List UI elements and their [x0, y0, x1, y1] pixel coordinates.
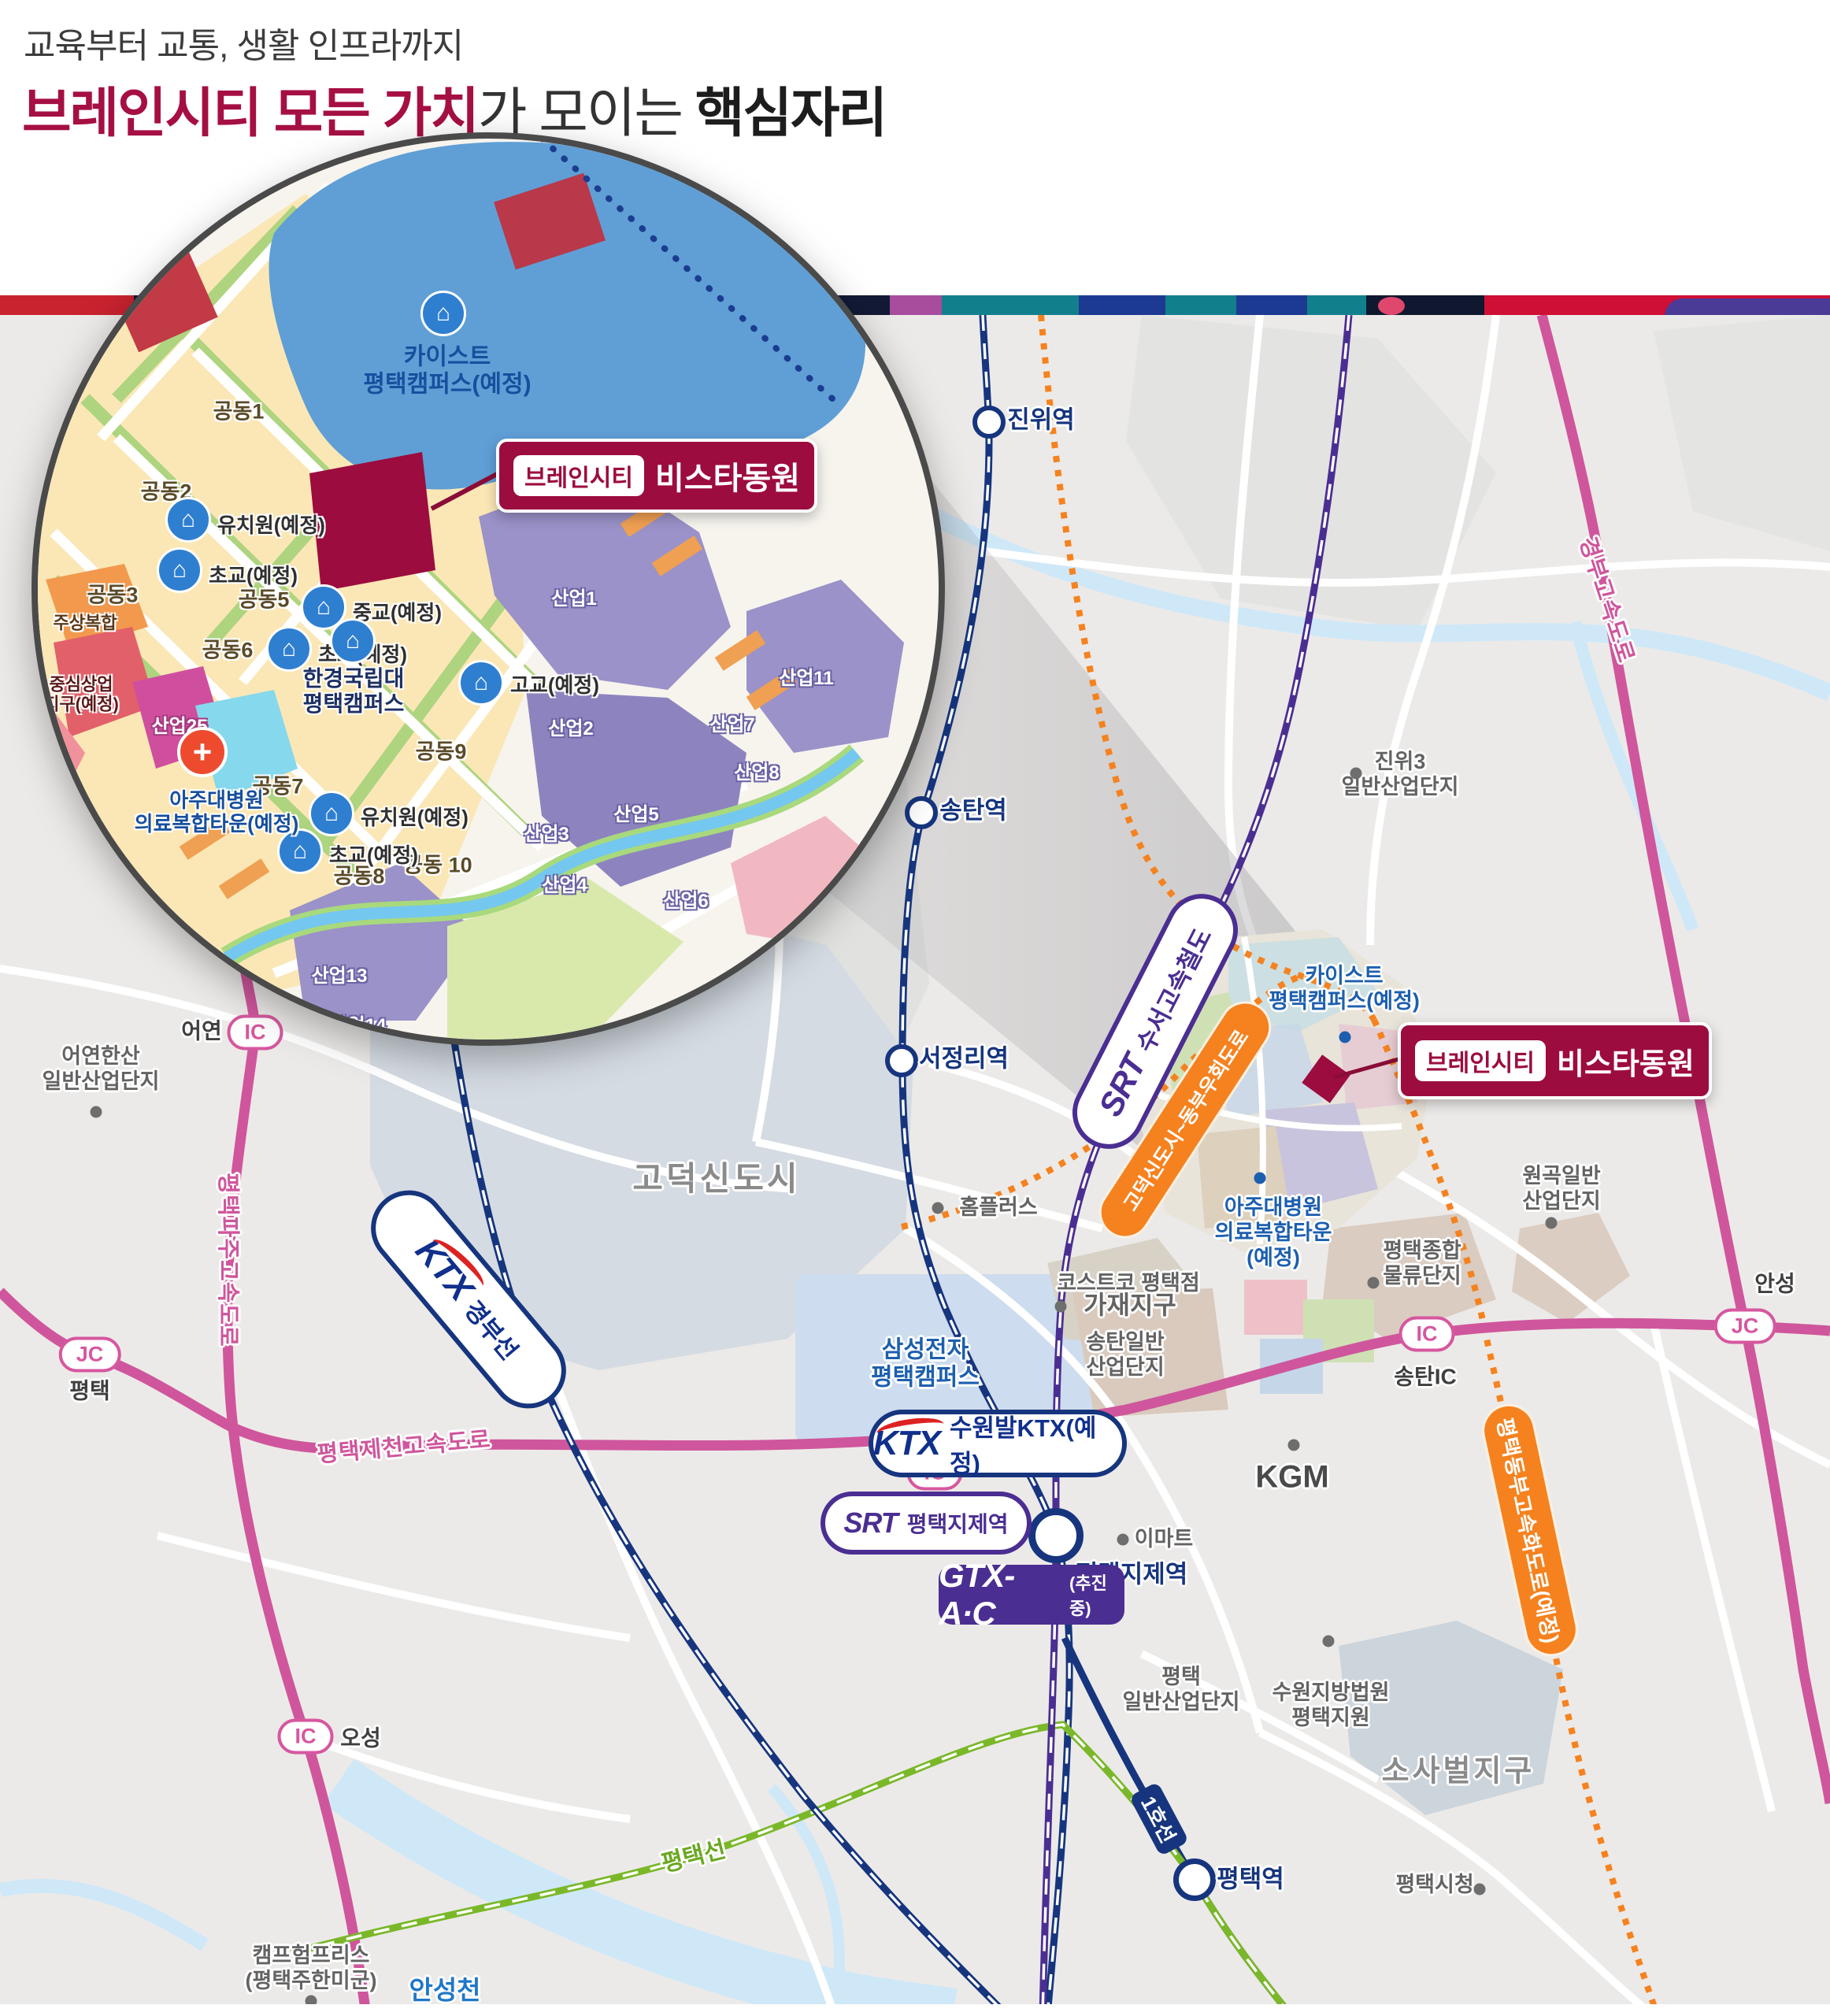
inset-industrial-label: 산업2: [548, 718, 594, 740]
title-accent: 브레인시티 모든 가치: [22, 83, 478, 143]
hospital-cross-icon: +: [177, 727, 228, 777]
rail-pill-suwon-ktx: KTX 수원발KTX(예정): [869, 1410, 1127, 1477]
school-icon: ⌂: [330, 618, 376, 664]
jc-badge-anseong: JC: [1714, 1309, 1776, 1344]
poi-label-emart: 이마트: [1135, 1527, 1194, 1552]
poi-dot: [932, 1203, 944, 1214]
wongok-industrial-area: [1512, 1213, 1630, 1323]
braincity-callout-inset: 브레인시티 비스타동원: [496, 439, 817, 513]
station-label-jinwi: 진위역: [1007, 406, 1075, 435]
station-circle-jije: [1028, 1508, 1084, 1563]
facility-label-ajou: 아주대병원 의료복합타운 (예정): [1214, 1195, 1332, 1271]
callout-name: 비스타동원: [655, 453, 800, 498]
inset-block-label: 공동1: [213, 399, 265, 424]
ic-badge-eoyeon: IC: [228, 1015, 283, 1051]
inset-label-kindergarten2: 유치원(예정): [361, 806, 469, 830]
inset-industrial-label: 산업7: [709, 714, 755, 736]
school-icon: ⌂: [157, 547, 202, 593]
ic-name-eoyeon: 어연: [181, 1017, 222, 1043]
ktx-logo: KTX: [873, 1424, 940, 1463]
rail-pill-srt-jije: SRT 평택지제역: [821, 1492, 1032, 1555]
jc-name-anseong: 안성: [1754, 1270, 1795, 1296]
ic-badge-oseong: IC: [278, 1719, 334, 1755]
braincity-callout-main: 브레인시티 비스타동원: [1398, 1022, 1712, 1099]
ic-badge-songtan: IC: [1399, 1317, 1455, 1352]
poi-label-kgm: KGM: [1255, 1458, 1328, 1495]
title-bold: 핵심자리: [695, 83, 886, 143]
page-subtitle: 교육부터 교통, 생활 인프라까지: [24, 17, 463, 68]
inset-label-high: 고교(예정): [510, 674, 599, 698]
inset-industrial-label: 산업13: [312, 965, 368, 988]
river: [0, 1886, 205, 1945]
inset-block-label: 공동9: [416, 739, 467, 764]
inset-label-elementary3: 초교(예정): [329, 844, 418, 868]
inset-block-label: 공동5: [239, 587, 290, 612]
inset-industrial-label: 산업8: [734, 762, 780, 784]
inset-label-hospital: 아주대병원 의료복합타운(예정): [135, 789, 299, 836]
area-label-pyeongtaek-ind: 평택 일반산업단지: [1122, 1665, 1239, 1715]
srt-logo: SRT: [1091, 1049, 1154, 1122]
inset-industrial-label: 산업6: [663, 891, 709, 913]
poi-dot: [1546, 1217, 1558, 1229]
school-icon: ⌂: [309, 791, 354, 836]
area-label-songtan-ind: 송탄일반 산업단지: [1086, 1330, 1164, 1380]
poi-label-homeplus: 홈플러스: [959, 1195, 1037, 1221]
school-icon: ⌂: [420, 291, 466, 336]
poi-dot: [1368, 1277, 1380, 1289]
inset-label-middle: 중교(예정): [353, 602, 442, 625]
station-circle-jinwi: [972, 406, 1006, 439]
ktx-logo: KTX: [407, 1232, 480, 1308]
ic-name-songtan: 송탄IC: [1394, 1363, 1457, 1389]
anseongcheon-river: [339, 1781, 953, 2004]
station-label-seojeongni: 서정리역: [919, 1045, 1009, 1074]
poi-dot: [1117, 1534, 1129, 1546]
inset-industrial-label: 산업1: [551, 588, 597, 610]
school-icon: ⌂: [266, 626, 312, 672]
station-label-pyeongtaek: 평택역: [1217, 1866, 1284, 1895]
river-label-anseongcheon: 안성천: [409, 1976, 480, 2007]
callout-chip: 브레인시티: [1415, 1040, 1546, 1081]
facility-dot: [1339, 1032, 1351, 1043]
inset-label-mixed-use: 주상복합: [54, 613, 117, 632]
srt-logo: SRT: [843, 1506, 897, 1540]
facility-dot: [1254, 1173, 1266, 1184]
terrain-patch: [1654, 315, 1830, 551]
inset-label-kindergarten: 유치원(예정): [217, 514, 325, 538]
poi-dot: [1474, 1884, 1486, 1896]
callout-name: 비스타동원: [1557, 1039, 1695, 1083]
ic-name-oseong: 오성: [340, 1725, 381, 1751]
inset-block-label: 공동6: [202, 638, 254, 662]
inset-label-kaist: 카이스트 평택캠퍼스(예정): [363, 344, 531, 398]
jc-name-pyeongtaek: 평택: [69, 1377, 110, 1403]
bar-dot: [1378, 297, 1405, 315]
area-label-wongok: 원곡일반 산업단지: [1522, 1164, 1600, 1214]
poi-dot: [91, 1106, 102, 1118]
inset-industrial-label: 산업11: [779, 668, 834, 690]
area-label-sosabeol: 소사벌지구: [1382, 1755, 1535, 1790]
area-label-samsung: 삼성전자 평택캠퍼스: [871, 1336, 980, 1392]
inset-industrial-label: 산업14: [331, 1015, 387, 1037]
gtx-logo: GTX-A·C: [939, 1557, 1061, 1632]
inset-label-commercial: 중심상업 지구(예정): [43, 675, 119, 715]
poi-dot: [1323, 1636, 1335, 1647]
inset-industrial-label: 산업4: [542, 875, 587, 897]
rail-pill-gtx: GTX-A·C (추진중): [939, 1565, 1124, 1625]
poi-dot: [1288, 1440, 1300, 1451]
inset-label-elementary: 초교(예정): [209, 565, 298, 588]
area-label-godeok: 고덕신도시: [632, 1159, 800, 1199]
callout-chip: 브레인시티: [513, 455, 644, 496]
inset-detail-map: ⌂ 카이스트 평택캠퍼스(예정) 브레인시티 비스타동원 공동1 공동2 공동3…: [31, 132, 945, 1046]
station-circle-pyeongtaek: [1173, 1858, 1216, 1901]
inset-block-label: 공동8: [334, 864, 385, 888]
inset-industrial-label: 산업5: [613, 804, 659, 826]
facility-label-kaist: 카이스트 평택캠퍼스(예정): [1269, 964, 1420, 1014]
station-circle-songtan: [905, 796, 938, 829]
poi-dot: [1350, 768, 1362, 780]
area-label-camp-humphreys: 캠프험프리스 (평택주한미군): [245, 1944, 376, 1994]
poi-dot: [1055, 1301, 1067, 1313]
inset-block-label: 공동3: [87, 583, 139, 607]
school-icon: ⌂: [458, 660, 504, 706]
poi-label-costco: 코스트코 평택점: [1057, 1271, 1199, 1296]
area-label-court: 수원지방법원 평택지원: [1272, 1681, 1389, 1731]
area-label-eoyeon-hansan: 어연한산 일반산업단지: [42, 1044, 159, 1095]
footer-strip: [0, 2004, 1830, 2016]
inset-label-univ: 한경국립대 평택캠퍼스: [303, 666, 405, 717]
area-label-logistics: 평택종합 물류단지: [1383, 1239, 1461, 1289]
road-label-pyeongtaek-paju: 평택파주고속도로: [214, 1173, 241, 1347]
station-label-songtan: 송탄역: [939, 797, 1007, 826]
jc-badge-pyeongtaek: JC: [59, 1337, 121, 1373]
bar-end-shape: [1665, 298, 1830, 317]
site-block: [309, 452, 435, 591]
poi-label-cityhall: 평택시청: [1395, 1873, 1473, 1898]
inset-industrial-label: 산업3: [524, 824, 569, 846]
mosaic-patch: [1244, 1280, 1307, 1335]
station-circle-seojeongni: [885, 1044, 918, 1077]
school-icon: ⌂: [165, 497, 211, 543]
